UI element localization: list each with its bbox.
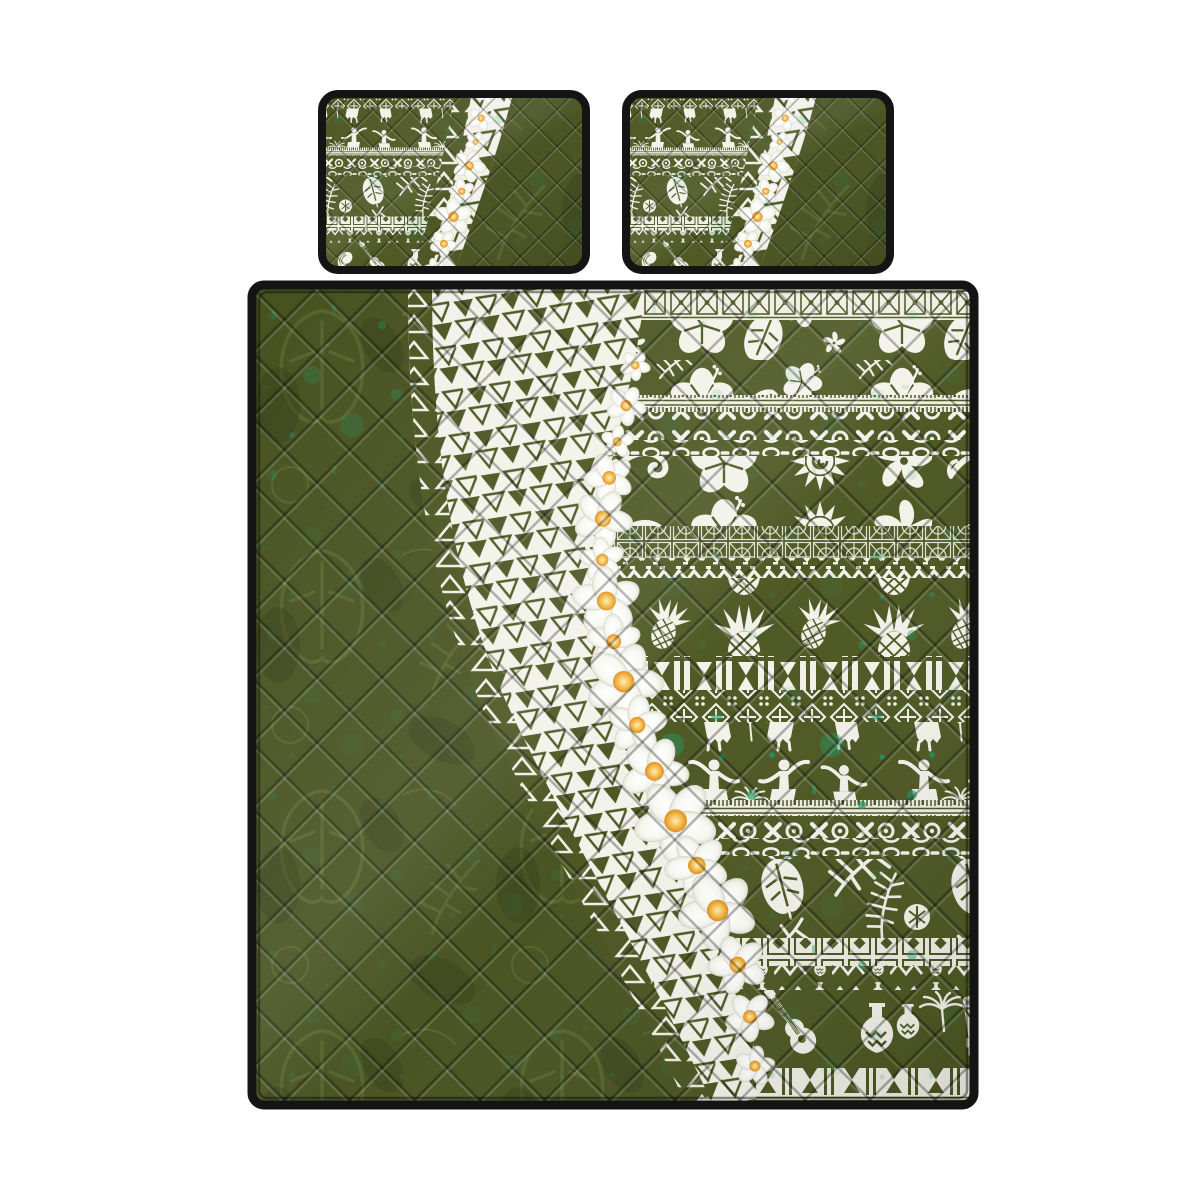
bedding-set-svg (0, 0, 1200, 1200)
quilt-cover (252, 285, 974, 1105)
bedding-set-image (0, 0, 1200, 1200)
pillow-sham-left (298, 0, 659, 300)
pillow-sham-right (602, 0, 963, 300)
